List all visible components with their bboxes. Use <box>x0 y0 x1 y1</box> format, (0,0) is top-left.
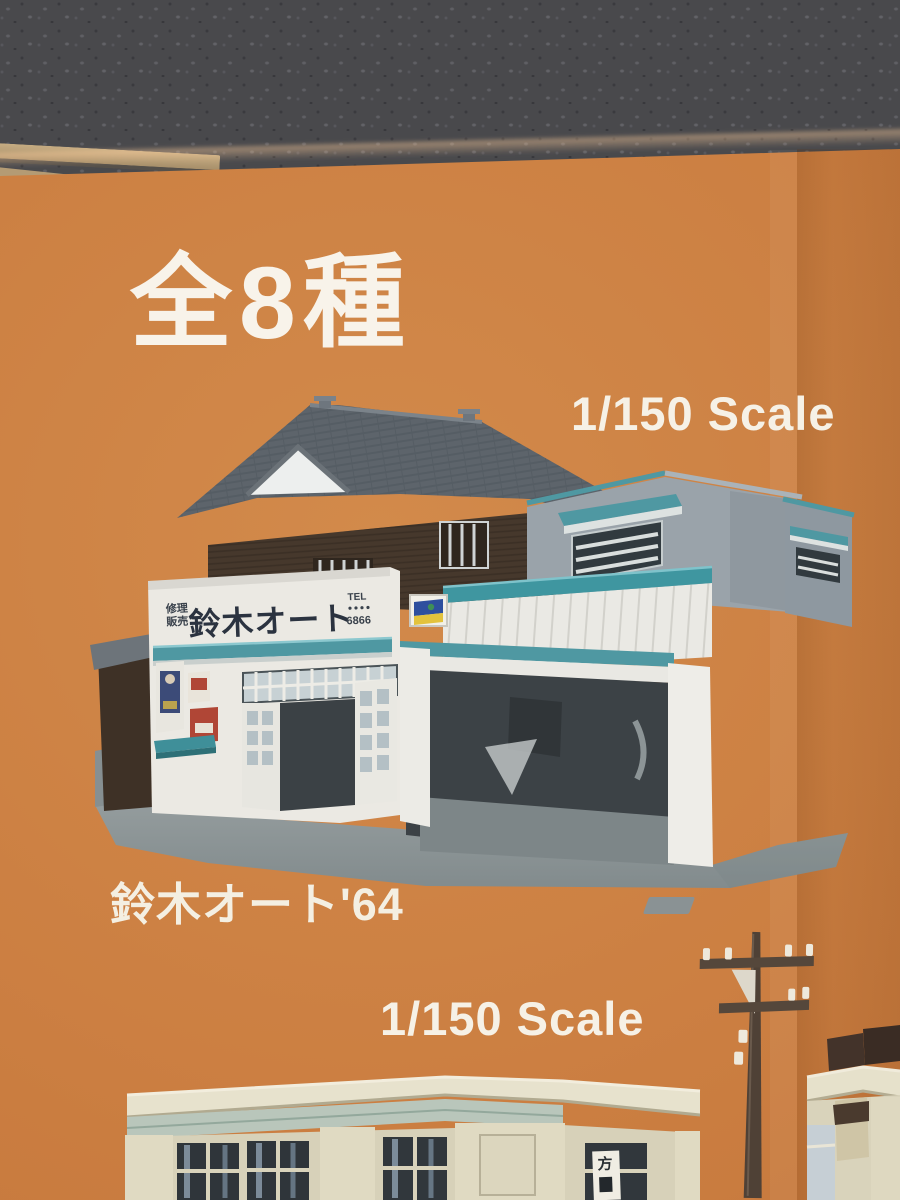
series-count-label: 全8種 <box>130 252 412 354</box>
house-window-slatted-2 <box>440 522 488 568</box>
second-model-building-partial: 方 <box>115 1065 715 1200</box>
garage-opening <box>406 669 674 865</box>
fascia-logo-plate <box>410 595 447 626</box>
pole-crossarm-mid <box>719 998 809 1015</box>
scale-label-top: 1/150 Scale <box>571 390 836 437</box>
sign-tel-number: 6866 <box>346 614 371 627</box>
garage-tower <box>783 499 854 627</box>
sign-left-line1: 修理 <box>165 601 189 616</box>
model-caption: 鈴木オート'64 <box>110 882 404 927</box>
door-frame-left <box>242 703 280 811</box>
scale-label-bottom: 1/150 Scale <box>380 995 645 1042</box>
utility-pole <box>690 930 820 1200</box>
photo-of-product-box: 全8種 1/150 Scale <box>0 0 900 1200</box>
door-frame-right <box>355 678 397 805</box>
garage-post-left <box>400 647 430 827</box>
sign-main-text: 鈴木オート <box>188 600 354 643</box>
storefront: 鈴木オート 修理 販売 TEL 6866 <box>148 567 400 823</box>
model-photo-suzuki-auto: 鈴木オート 修理 販売 TEL 6866 <box>90 395 855 900</box>
sign-tel-label: TEL <box>347 592 366 604</box>
street-sign-character: 方 <box>597 1155 613 1174</box>
garage-post-right <box>668 663 713 867</box>
vertical-street-sign: 方 <box>592 1151 621 1200</box>
storefront-door-opening <box>280 699 355 811</box>
sign-left-line2: 販売 <box>166 614 189 629</box>
